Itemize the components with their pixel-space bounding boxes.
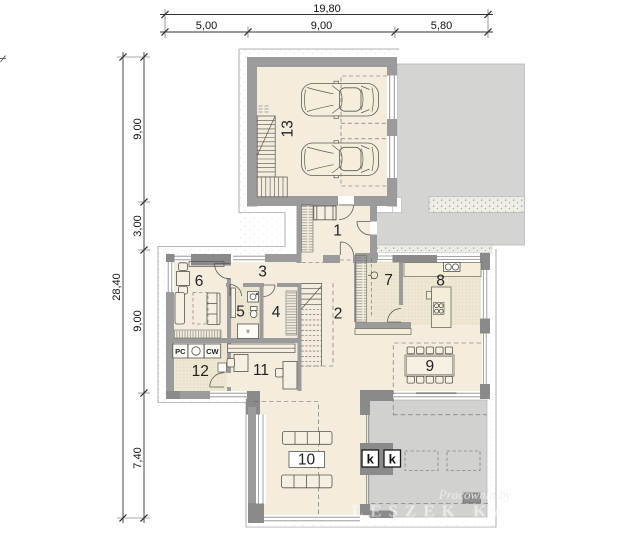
svg-text:PC: PC xyxy=(175,347,186,356)
svg-text:9,00: 9,00 xyxy=(132,310,144,331)
svg-text:1: 1 xyxy=(333,223,342,240)
svg-text:LESZEK KALANDYK: LESZEK KALANDYK xyxy=(352,502,628,521)
svg-text:5: 5 xyxy=(236,304,245,321)
svg-text:5,80: 5,80 xyxy=(431,20,452,32)
svg-text:7: 7 xyxy=(384,272,393,289)
svg-text:CW: CW xyxy=(206,347,219,356)
svg-text:k: k xyxy=(367,452,375,467)
svg-text:5,00: 5,00 xyxy=(196,20,217,32)
svg-text:12: 12 xyxy=(192,363,209,380)
svg-text:3: 3 xyxy=(258,264,267,281)
svg-text:7,40: 7,40 xyxy=(132,447,144,468)
svg-text:19,80: 19,80 xyxy=(313,3,341,15)
svg-text:2: 2 xyxy=(334,305,343,322)
svg-text:6: 6 xyxy=(195,273,204,290)
svg-text:9,00: 9,00 xyxy=(311,20,332,32)
svg-text:3,00: 3,00 xyxy=(132,215,144,236)
svg-text:28,40: 28,40 xyxy=(111,273,123,301)
svg-text:13: 13 xyxy=(279,120,296,137)
svg-text:9: 9 xyxy=(425,358,434,375)
svg-text:9,00: 9,00 xyxy=(132,118,144,139)
svg-text:k: k xyxy=(389,452,397,467)
svg-text:4: 4 xyxy=(272,304,281,321)
svg-text:10: 10 xyxy=(298,452,316,469)
svg-text:11: 11 xyxy=(253,362,269,379)
svg-text:Pracownia by: Pracownia by xyxy=(438,487,512,502)
svg-text:8: 8 xyxy=(436,273,445,290)
